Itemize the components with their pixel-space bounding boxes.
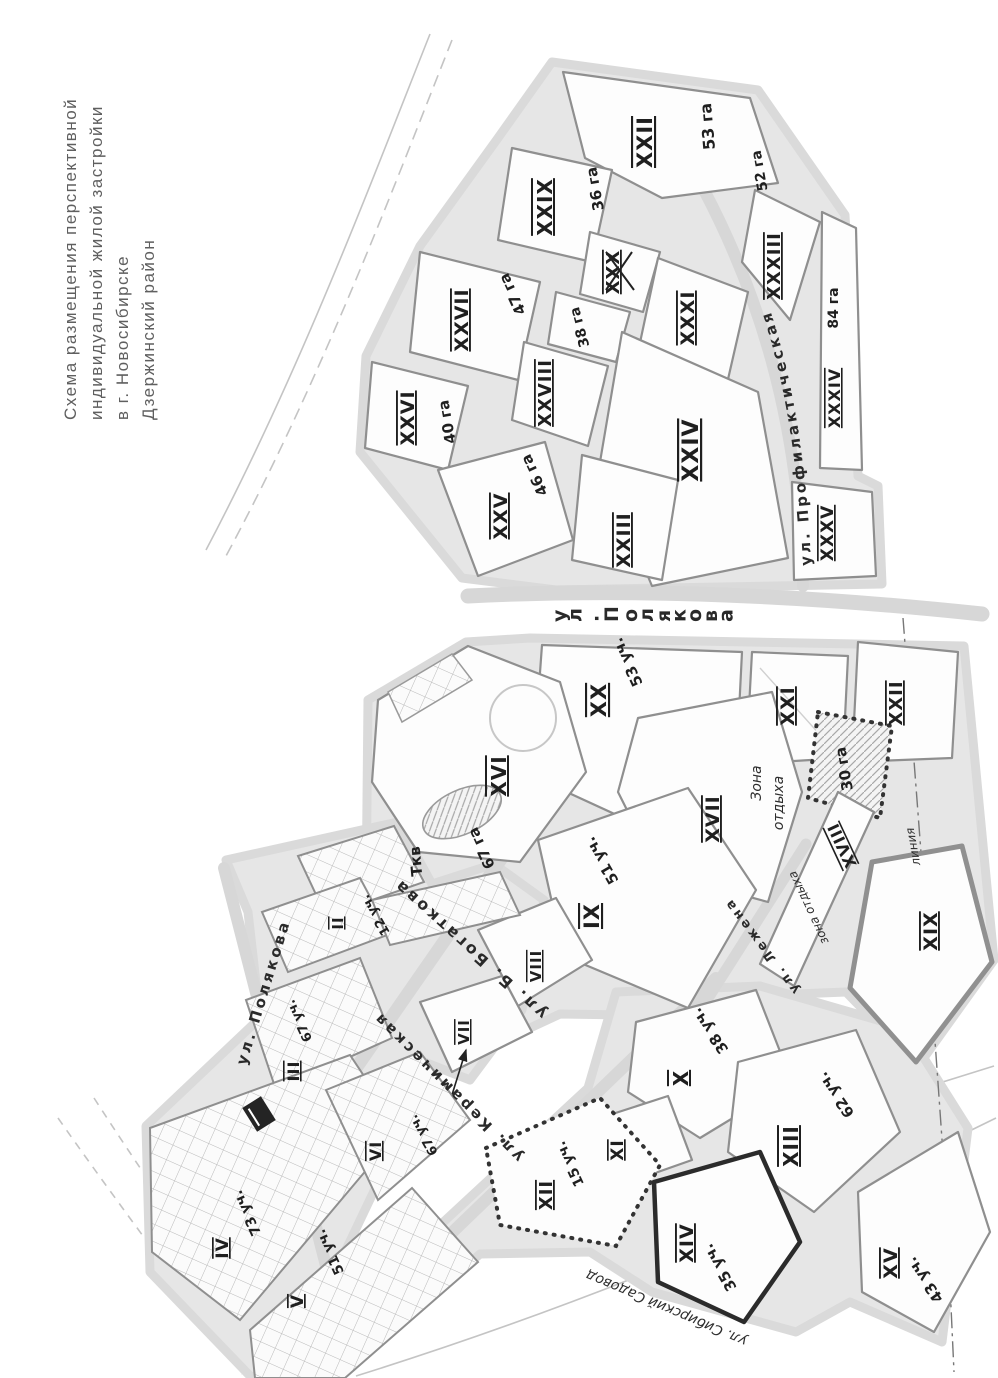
- recreation-zone-label-line1: Зона: [749, 765, 765, 800]
- block-xxxv-numeral: XXXV: [818, 505, 838, 561]
- block-xix-numeral: XIX: [920, 911, 942, 950]
- block-xxvi-numeral: XXVI: [397, 390, 419, 445]
- map-svg: XXII 53 га XXIX 36 га XXXIII 52 га XXX X…: [0, 0, 998, 1378]
- block-xxii-lower-numeral: XXII: [886, 680, 907, 725]
- block-xxv-numeral: XXV: [490, 492, 512, 539]
- block-xv-numeral: XV: [880, 1247, 902, 1278]
- block-viii-numeral: VIII: [527, 950, 545, 982]
- block-ix-numeral: IX: [580, 903, 604, 929]
- block-xvii-numeral: XVII: [702, 795, 724, 843]
- block-xiv-numeral: XIV: [676, 1223, 698, 1262]
- block-xxii-upper-numeral: XXII: [633, 116, 657, 168]
- block-xxiv-numeral: XXIV: [679, 418, 704, 481]
- page-title-line-2: индивидуальной жилой застройки: [87, 105, 106, 420]
- street-label-polyakova-main: ул. Полякова: [549, 603, 737, 622]
- block-iv-numeral: IV: [213, 1237, 233, 1258]
- block-xxix-numeral: XXIX: [533, 178, 557, 236]
- utility-point-label: Ткв: [406, 846, 427, 877]
- block-xx-numeral: XX: [587, 683, 611, 717]
- block-xxvii-numeral: XXVII: [451, 288, 473, 351]
- block-ii-numeral: II: [329, 916, 347, 929]
- block-xxxi-numeral: XXXI: [677, 290, 699, 345]
- block-v-numeral: V: [288, 1294, 308, 1308]
- recreation-zone-label-line2: отдыха: [771, 776, 787, 830]
- page-title-line-4: Дзержинский район: [139, 239, 158, 420]
- block-xii-numeral: XII: [536, 1180, 557, 1210]
- block-xxiii-numeral: XXIII: [613, 512, 635, 568]
- block-xiii-numeral: XIII: [779, 1125, 803, 1167]
- scanned-map-page: XXII 53 га XXIX 36 га XXXIII 52 га XXX X…: [0, 0, 998, 1378]
- block-xxxiv-strip: [820, 212, 862, 470]
- block-xvi-numeral: XVI: [487, 755, 511, 796]
- block-x-numeral: X: [669, 1070, 693, 1086]
- page-title-line-1: Схема размещения перспективной: [61, 98, 80, 420]
- block-xxxiv-area: 84 га: [826, 287, 842, 328]
- block-iii-numeral: III: [284, 1061, 303, 1082]
- block-xi-numeral: XI: [608, 1139, 628, 1160]
- block-vi-numeral: VI: [366, 1141, 385, 1161]
- block-xxxiv-numeral: XXXIV: [825, 368, 844, 428]
- block-xxi-numeral: XXI: [777, 686, 799, 725]
- block-xxxiii-numeral: XXXIII: [764, 232, 785, 300]
- block-xxviii-numeral: XXVIII: [535, 359, 556, 427]
- page-title-line-3: в г. Новосибирске: [113, 255, 132, 420]
- block-vii-numeral: VII: [455, 1019, 473, 1045]
